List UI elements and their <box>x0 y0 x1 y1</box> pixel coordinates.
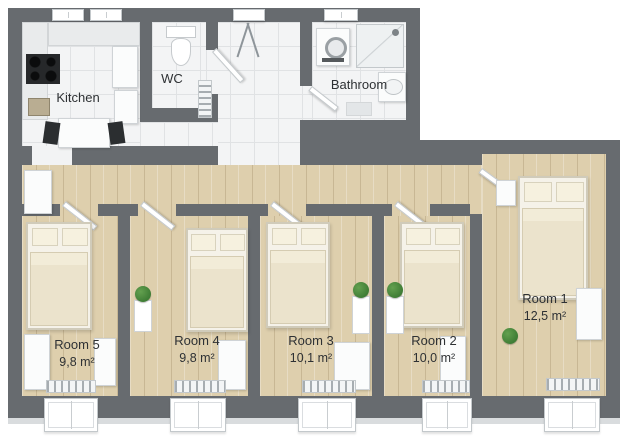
pillow <box>32 228 58 246</box>
room2-planter <box>386 296 404 334</box>
window-mullion <box>106 12 107 18</box>
room1-bed <box>518 176 588 300</box>
room2-window <box>422 398 472 432</box>
window-mullion <box>341 12 342 18</box>
duvet <box>190 256 244 328</box>
room3-room2-wall <box>372 216 384 396</box>
room1-nightstand <box>496 180 516 206</box>
window-mullion <box>71 401 72 429</box>
kitchen-doorway-threshold <box>32 146 72 165</box>
room3-bed <box>266 222 330 328</box>
room5-label: Room 5 9,8 m² <box>32 337 122 370</box>
room4-window <box>170 398 226 432</box>
window-mullion <box>68 12 69 18</box>
pillow <box>62 228 88 246</box>
wc-label-text: WC <box>161 71 183 86</box>
pillow <box>556 182 584 202</box>
pillow <box>272 228 297 245</box>
room2-radiator <box>422 380 470 393</box>
dining-chair-right <box>108 121 126 145</box>
room4-area: 9,8 m² <box>152 350 242 366</box>
room5-window <box>44 398 98 432</box>
shower-head <box>392 29 399 36</box>
bathroom-bottom-wall <box>300 120 420 165</box>
duvet <box>522 208 584 296</box>
wc-label: WC <box>145 71 199 88</box>
window-mullion <box>447 401 448 429</box>
corridor-stub-2 <box>98 204 130 216</box>
dining-chair-left <box>43 121 61 145</box>
room1-area: 12,5 m² <box>500 308 590 324</box>
room5-name: Room 5 <box>54 337 100 352</box>
bathroom-label: Bathroom <box>317 77 401 94</box>
washing-machine <box>316 28 350 66</box>
duvet <box>404 250 460 324</box>
corridor-stub-7 <box>384 204 392 216</box>
corridor-stub-3 <box>130 204 138 216</box>
pillow <box>191 234 216 251</box>
room2-room1-wall-stub <box>470 154 482 164</box>
corridor-stub-8 <box>430 204 470 216</box>
room4-plant <box>135 286 151 302</box>
room1-top-wall <box>482 140 606 154</box>
hall-cabinet <box>24 170 52 214</box>
bathroom-window <box>324 9 358 21</box>
room1-name: Room 1 <box>522 291 568 306</box>
kitchen-label: Kitchen <box>38 90 118 107</box>
room1-label: Room 1 12,5 m² <box>500 291 590 324</box>
kitchen-window-left <box>52 9 84 21</box>
hall-floor-patch <box>140 122 218 146</box>
room1-radiator <box>546 378 600 391</box>
room2-name: Room 2 <box>411 333 457 348</box>
room1-plant <box>502 328 518 344</box>
corridor-stub-6 <box>306 204 384 216</box>
kitchen-label-text: Kitchen <box>56 90 99 105</box>
entrance-door <box>233 9 265 21</box>
room3-plant <box>353 282 369 298</box>
room1-window <box>544 398 600 432</box>
room4-room3-wall <box>248 216 260 396</box>
washing-machine-vent <box>322 58 344 62</box>
room2-room1-wall <box>470 214 482 396</box>
kitchen-counter-top <box>48 22 140 46</box>
pillow <box>524 182 552 202</box>
drying-rack <box>234 22 260 58</box>
room2-bed <box>400 222 464 328</box>
room2-label: Room 2 10,0 m² <box>389 333 479 366</box>
room4-bed <box>186 228 248 332</box>
room2-area: 10,0 m² <box>389 350 479 366</box>
room5-area: 9,8 m² <box>32 354 122 370</box>
bathroom-label-text: Bathroom <box>331 77 387 92</box>
room4-radiator <box>174 380 226 393</box>
kitchen-bottom-wall-b <box>72 146 218 165</box>
corridor-stub-4 <box>176 204 260 216</box>
room5-bed <box>26 222 92 330</box>
toilet-tank <box>166 26 196 38</box>
stove <box>26 54 60 84</box>
room3-planter <box>352 296 370 334</box>
outer-wall-right <box>606 140 620 418</box>
room3-window <box>298 398 356 432</box>
hall-radiator <box>198 80 212 118</box>
kitchen-bottom-wall-a <box>22 146 32 165</box>
room3-name: Room 3 <box>288 333 334 348</box>
pillow <box>220 234 245 251</box>
room4-planter <box>134 300 152 332</box>
window-mullion <box>572 401 573 429</box>
room3-area: 10,1 m² <box>266 350 356 366</box>
window-mullion <box>198 401 199 429</box>
fridge <box>112 46 138 88</box>
room4-name: Room 4 <box>174 333 220 348</box>
floor-plan: Kitchen WC Bathroom Room 5 9,8 m² <box>0 0 640 448</box>
outer-wall-left <box>8 8 22 418</box>
room3-label: Room 3 10,1 m² <box>266 333 356 366</box>
duvet <box>30 252 88 326</box>
toilet <box>171 38 191 66</box>
dining-table <box>58 118 110 148</box>
window-mullion <box>327 401 328 429</box>
room3-radiator <box>302 380 356 393</box>
kitchen-window-right <box>90 9 122 21</box>
washing-machine-door <box>325 37 347 59</box>
drying-rack-bar <box>246 23 259 58</box>
pillow <box>406 228 431 245</box>
room5-radiator <box>46 380 96 393</box>
bath-mat <box>346 102 372 116</box>
corridor-stub-5 <box>260 204 268 216</box>
duvet <box>270 250 326 324</box>
pillow <box>435 228 460 245</box>
room4-label: Room 4 9,8 m² <box>152 333 242 366</box>
room2-plant <box>387 282 403 298</box>
wc-right-wall-upper <box>206 22 218 50</box>
hall-bathroom-wall <box>300 8 312 86</box>
shower <box>356 24 404 68</box>
pillow <box>301 228 326 245</box>
